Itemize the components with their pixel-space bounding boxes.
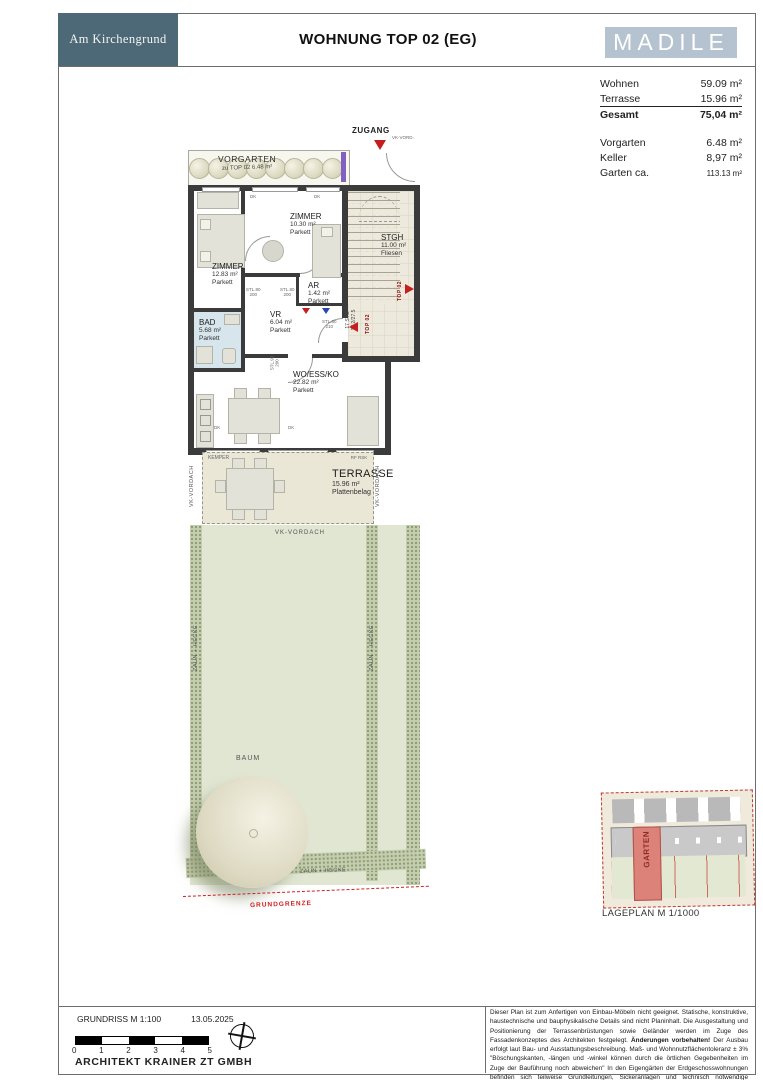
room-area: 10.30 m² (290, 221, 322, 228)
scale-ticks: 0 1 2 3 4 5 (72, 1046, 212, 1055)
room-bad: BAD 5.68 m² Parkett (199, 318, 221, 342)
wall-wo-right (385, 360, 391, 455)
section-marker-red-icon (302, 308, 310, 314)
header-logo-text: Am Kirchengrund (69, 32, 166, 47)
stl-size: 200 (280, 293, 295, 298)
chair-icon (232, 458, 245, 469)
tick: 0 (72, 1046, 76, 1055)
zaun-hecke-right: ZAUN + HECKE (369, 615, 375, 671)
area-row-keller: Keller 8,97 m² (600, 150, 742, 165)
partition-bad-right (241, 311, 245, 372)
room-area: 1.42 m² (308, 290, 330, 297)
room-name: VR (270, 310, 292, 319)
chair-icon (258, 388, 271, 399)
header-divider (58, 66, 755, 67)
room-name: WO/ESS/KO (293, 370, 339, 379)
bush-icon (284, 158, 305, 179)
tick: 1 (99, 1046, 103, 1055)
area-row-wohnen: Wohnen 59.09 m² (600, 76, 742, 91)
area-value: 8,97 m² (706, 152, 742, 164)
tick: 2 (126, 1046, 130, 1055)
disclaimer: Dieser Plan ist zum Anfertigen von Einba… (490, 1008, 748, 1080)
room-area: 5.68 m² (199, 327, 221, 334)
top02-marker-text: TOP 02 (397, 281, 403, 301)
kitchen-icon (196, 394, 214, 448)
room-ar: AR 1.42 m² Parkett (308, 281, 330, 305)
area-table: Wohnen 59.09 m² Terrasse 15.96 m² Gesamt… (600, 76, 742, 180)
vorgarten-label: VORGARTEN (218, 154, 276, 164)
window (202, 187, 240, 192)
area-value: 113.13 m² (707, 169, 742, 178)
area-row-vorgarten: Vorgarten 6.48 m² (600, 135, 742, 150)
area-row-gesamt: Gesamt 75,04 m² (600, 106, 742, 122)
stl-label-vertical: STL.90 200 (270, 356, 280, 371)
zugang-sub: VK-VORD. (392, 136, 414, 141)
area-row-terrasse: Terrasse 15.96 m² (600, 91, 742, 106)
room-area: 22.82 m² (293, 379, 339, 386)
sink-icon (224, 314, 240, 325)
chair-icon (215, 480, 226, 493)
area-value: 6.48 m² (706, 137, 742, 149)
area-row-garten: Garten ca. 113.13 m² (600, 165, 742, 180)
zugang-label: ZUGANG (352, 126, 390, 135)
door-marker (341, 152, 346, 182)
room-area: 11.00 m² (381, 242, 406, 249)
bed-double-icon (197, 214, 245, 268)
wall-annex-bottom (342, 356, 420, 362)
room-name: TERRASSE (332, 468, 394, 481)
stl-label: STL.80 200 (246, 288, 261, 298)
room-floor: Parkett (290, 229, 322, 236)
brand-logo-text: MADILE (613, 29, 729, 56)
dining-table-icon (228, 398, 280, 434)
brand-logo: MADILE (605, 27, 737, 58)
wall-annex-right (414, 185, 420, 362)
footer-vertical-divider (485, 1006, 486, 1073)
room-name: AR (308, 281, 330, 290)
room-stgh: STGH 11.00 m² Fliesen (381, 233, 406, 257)
room-area: 6.04 m² (270, 319, 292, 326)
header-logo: Am Kirchengrund (58, 13, 178, 66)
room-vr: VR 6.04 m² Parkett (270, 310, 292, 334)
tree-trunk-icon (249, 829, 258, 838)
plan-sheet: Am Kirchengrund WOHNUNG TOP 02 (EG) MADI… (0, 0, 763, 1080)
lageplan-map: GARTEN (601, 789, 755, 908)
area-label: Wohnen (600, 78, 639, 90)
stl-label: STL.80 210 (322, 320, 337, 330)
bush-icon (189, 158, 210, 179)
chair-icon (234, 433, 247, 444)
section-marker-blue-icon (322, 308, 330, 314)
room-floor: Parkett (293, 387, 339, 394)
window (306, 187, 340, 192)
rf-rsk-label: RF RSK (350, 456, 368, 461)
chair-icon (254, 509, 267, 520)
lageplan-caption: LAGEPLAN M 1/1000 (602, 908, 700, 919)
footer-scale-row: GRUNDRISS M 1:100 13.05.2025 (77, 1014, 337, 1024)
chair-icon (258, 433, 271, 444)
lageplan-unit-highlight: GARTEN (633, 826, 663, 901)
partition-vr-wo-b (312, 354, 342, 358)
architect-label: ARCHITEKT KRAINER ZT GMBH (75, 1056, 252, 1068)
room-area: 12.83 m² (212, 271, 244, 278)
door-label-dk: DK (314, 195, 320, 200)
room-wo-ess-ko: WO/ESS/KO 22.82 m² Parkett (293, 370, 339, 394)
page-title: WOHNUNG TOP 02 (EG) (178, 13, 598, 66)
tick: 5 (208, 1046, 212, 1055)
tick: 3 (153, 1046, 157, 1055)
plan-date: 13.05.2025 (191, 1014, 234, 1024)
window (252, 187, 298, 192)
room-floor: Parkett (212, 279, 244, 286)
top02-entry-arrow-icon (349, 322, 358, 332)
door-label-dk: DK (250, 195, 256, 200)
room-name: ZIMMER (290, 212, 322, 221)
hedge-far-right (406, 525, 420, 885)
stl-size: 200 (275, 356, 280, 371)
chair-icon (254, 458, 267, 469)
garden-vordach-label: VK-VORDACH (255, 530, 345, 536)
chair-icon (232, 509, 245, 520)
washer-icon (196, 346, 213, 364)
bush-icon (322, 158, 343, 179)
vordach-label-right: VK-VORDACH (375, 467, 381, 507)
wc-icon (222, 348, 236, 364)
zugang-arrow-icon (374, 140, 386, 150)
scale-bar (75, 1036, 209, 1045)
terrace-table-icon (226, 468, 274, 510)
wardrobe-icon (197, 192, 239, 209)
room-floor: Plattenbelag (332, 489, 394, 497)
room-area: 15.96 m² (332, 481, 394, 489)
partition-vr-wo-a (245, 354, 288, 358)
partition-ar-left (296, 277, 299, 305)
room-floor: Parkett (308, 298, 330, 305)
area-value: 75,04 m² (700, 109, 742, 121)
room-name: STGH (381, 233, 406, 242)
door-label-dk: DK (214, 426, 220, 431)
tick: 4 (180, 1046, 184, 1055)
lageplan-roofs (612, 797, 740, 824)
room-name: BAD (199, 318, 221, 327)
top02-entry-text: TOP 02 (365, 314, 371, 334)
lageplan-garten-label: GARTEN (642, 831, 652, 868)
area-label: Vorgarten (600, 137, 646, 149)
stl-size: 200 (246, 293, 261, 298)
room-floor: Parkett (199, 335, 221, 342)
stl-label: STL.80 200 (280, 288, 295, 298)
room-name: ZIMMER (212, 262, 244, 271)
disclaimer-bold: Änderungen vorbehalten! (631, 1037, 710, 1044)
stl-size: 210 (322, 325, 337, 330)
area-value: 59.09 m² (701, 78, 742, 90)
partition-bad-bottom (194, 368, 241, 372)
room-terrasse: TERRASSE 15.96 m² Plattenbelag (332, 468, 394, 497)
door-label-dk: DK (288, 426, 294, 431)
room-zimmer-left: ZIMMER 12.83 m² Parkett (212, 262, 244, 286)
baum-label: BAUM (236, 755, 260, 762)
bush-icon (303, 158, 324, 179)
area-label: Garten ca. (600, 167, 649, 179)
chair-icon (274, 480, 285, 493)
sofa-icon (347, 396, 379, 446)
chair-icon (234, 388, 247, 399)
vordach-label-left: VK-VORDACH (189, 467, 195, 507)
area-label: Gesamt (600, 109, 639, 121)
top02-arrow-icon (405, 284, 414, 294)
room-floor: Fliesen (381, 250, 406, 257)
lageplan-gardens (611, 855, 746, 900)
rug-icon (262, 240, 284, 262)
area-value: 15.96 m² (701, 93, 742, 105)
stair-dims: 17.2/27.5 (351, 300, 357, 340)
room-zimmer-top: ZIMMER 10.30 m² Parkett (290, 212, 322, 236)
kemper-label: KEMPER (208, 456, 229, 462)
plan-scale-label: GRUNDRISS M 1:100 (77, 1014, 161, 1024)
area-label: Terrasse (600, 93, 640, 105)
compass-icon (228, 1022, 256, 1050)
room-floor: Parkett (270, 327, 292, 334)
hedge-right (366, 525, 378, 881)
zaun-hecke-left: ZAUN + HECKE (193, 615, 199, 671)
footer-divider (58, 1006, 755, 1007)
area-label: Keller (600, 152, 627, 164)
